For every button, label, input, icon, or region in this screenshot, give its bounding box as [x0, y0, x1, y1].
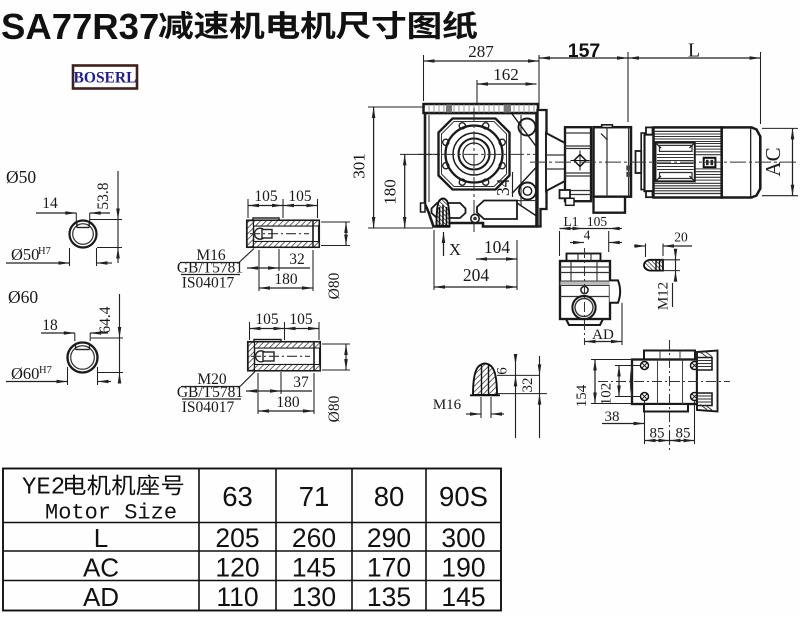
svg-text:IS04017: IS04017 [182, 399, 235, 416]
svg-text:105: 105 [254, 188, 278, 205]
svg-text:Ø60: Ø60 [8, 287, 38, 307]
svg-text:260: 260 [292, 523, 336, 553]
svg-text:145: 145 [292, 553, 336, 583]
svg-text:85: 85 [650, 426, 665, 442]
svg-text:Ø60: Ø60 [11, 364, 39, 383]
svg-text:290: 290 [367, 523, 411, 553]
svg-text:M12: M12 [656, 282, 672, 310]
svg-text:38: 38 [605, 409, 620, 425]
svg-text:BOSERL: BOSERL [74, 70, 137, 87]
svg-text:157: 157 [568, 40, 601, 62]
svg-text:130: 130 [292, 582, 336, 612]
svg-text:180: 180 [381, 179, 400, 205]
svg-text:Motor Size: Motor Size [45, 501, 177, 526]
svg-text:105: 105 [289, 311, 313, 328]
svg-text:H7: H7 [38, 246, 51, 257]
svg-text:32: 32 [520, 378, 536, 393]
svg-text:64.4: 64.4 [97, 306, 114, 333]
svg-text:205: 205 [215, 523, 259, 553]
svg-text:H7: H7 [39, 365, 52, 376]
svg-text:63: 63 [222, 481, 253, 512]
svg-text:AD: AD [83, 582, 119, 612]
svg-text:110: 110 [216, 582, 258, 612]
svg-text:135: 135 [367, 582, 411, 612]
svg-text:SA77R37: SA77R37 [1, 6, 159, 47]
svg-text:18: 18 [42, 317, 58, 334]
svg-text:Ø80: Ø80 [326, 395, 343, 422]
svg-text:104: 104 [484, 237, 511, 257]
svg-text:85: 85 [676, 426, 691, 442]
svg-text:X: X [449, 240, 461, 259]
svg-text:32: 32 [289, 251, 305, 268]
svg-text:AC: AC [83, 553, 119, 583]
svg-text:80: 80 [374, 481, 405, 512]
svg-text:20: 20 [674, 230, 688, 245]
svg-text:300: 300 [441, 523, 485, 553]
svg-text:14: 14 [42, 195, 58, 212]
svg-text:154: 154 [574, 384, 590, 407]
svg-text:170: 170 [367, 553, 411, 583]
svg-text:37: 37 [293, 374, 309, 391]
svg-text:6: 6 [495, 367, 511, 375]
svg-text:YE2: YE2 [22, 475, 65, 502]
svg-text:190: 190 [441, 553, 485, 583]
svg-text:L1: L1 [564, 214, 579, 229]
svg-text:287: 287 [468, 42, 494, 61]
svg-text:105: 105 [288, 188, 312, 205]
svg-text:53.8: 53.8 [95, 182, 112, 209]
svg-text:Ø50: Ø50 [11, 245, 39, 264]
svg-text:301: 301 [350, 153, 369, 179]
svg-text:34: 34 [493, 178, 513, 196]
svg-text:102: 102 [599, 383, 615, 406]
svg-text:71: 71 [299, 481, 330, 512]
svg-text:105: 105 [255, 311, 279, 328]
svg-text:120: 120 [215, 553, 259, 583]
svg-text:145: 145 [441, 582, 485, 612]
svg-text:Ø50: Ø50 [6, 167, 36, 187]
svg-text:IS04017: IS04017 [182, 275, 235, 292]
svg-text:M16: M16 [433, 397, 462, 413]
svg-text:Ø80: Ø80 [326, 272, 343, 299]
svg-text:90S: 90S [439, 481, 488, 512]
svg-text:4: 4 [584, 228, 591, 243]
svg-text:180: 180 [276, 394, 300, 411]
svg-text:204: 204 [463, 265, 490, 285]
svg-text:162: 162 [493, 65, 519, 84]
svg-text:180: 180 [274, 271, 298, 288]
svg-text:L: L [688, 40, 700, 62]
svg-text:L: L [94, 523, 108, 553]
